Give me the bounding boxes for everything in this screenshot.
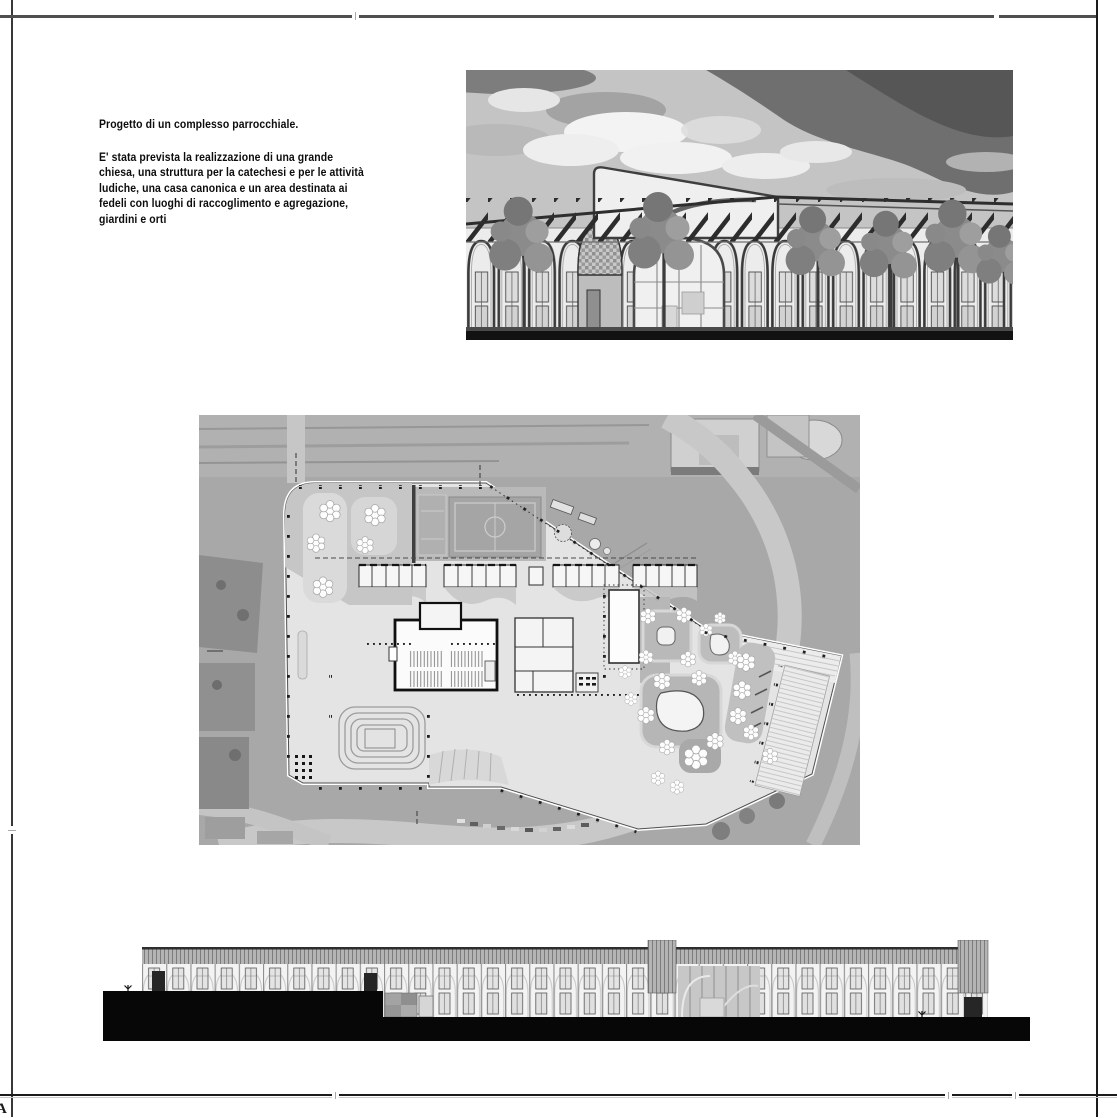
door-left <box>152 971 165 992</box>
registration-tick-bottom-2 <box>945 1092 952 1099</box>
frame-line-left <box>11 0 13 1117</box>
light-door <box>419 996 433 1017</box>
site-plan-figure <box>199 415 860 845</box>
site-plan <box>199 415 860 845</box>
stage <box>365 729 395 748</box>
church-chapel <box>420 603 461 629</box>
sheet-corner-mark: A <box>0 1101 7 1118</box>
registration-tick-bottom-1 <box>332 1092 339 1099</box>
registration-tick-bottom-3 <box>1012 1092 1019 1099</box>
project-body: E' stata prevista la realizzazione di un… <box>99 150 369 227</box>
striped-gable-panel <box>648 940 676 993</box>
church-entrance <box>389 647 397 661</box>
striped-roof-band <box>142 948 988 964</box>
elevation-drawing <box>100 940 1035 1044</box>
frame-line-top <box>0 15 1097 18</box>
frame-line-right <box>1096 0 1098 1117</box>
altar <box>485 661 495 681</box>
striped-end-panel <box>958 940 988 993</box>
parish-hall <box>609 590 639 663</box>
checkered-panels <box>385 993 433 1017</box>
registration-tick-top <box>352 12 359 20</box>
elevation-figure <box>100 940 1035 1044</box>
sports-area <box>412 485 546 563</box>
glazed-atrium <box>678 966 760 1017</box>
registration-gap-top <box>994 13 999 19</box>
presentation-sheet: { "sheet": { "corner_mark": "A" }, "intr… <box>0 0 1117 1117</box>
ground-line <box>466 327 1013 340</box>
registration-tick-left <box>8 826 16 834</box>
dividing-wall <box>412 485 416 563</box>
door-right <box>964 997 982 1017</box>
door-middle <box>364 973 377 992</box>
perspective-rendering <box>466 70 1013 340</box>
perspective-rendering-figure <box>466 70 1013 340</box>
project-title: Progetto di un complesso parrocchiale. <box>99 118 369 131</box>
lamp-post-left <box>125 985 132 991</box>
plaza-bench <box>298 631 307 679</box>
project-description: Progetto di un complesso parrocchiale. E… <box>99 118 369 227</box>
